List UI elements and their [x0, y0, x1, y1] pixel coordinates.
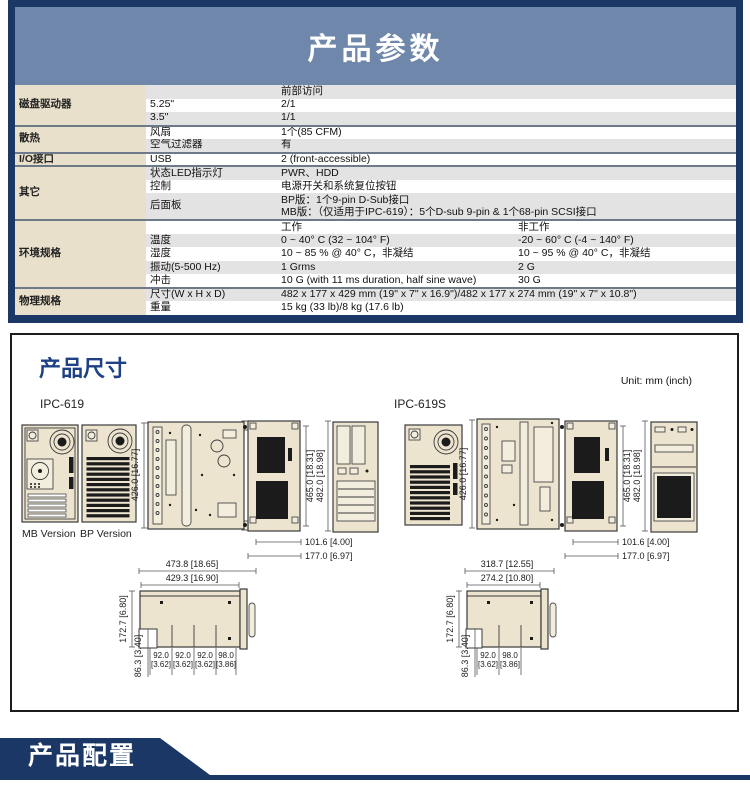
- svg-text:[3.62]: [3.62]: [478, 660, 498, 669]
- mb-version-label: MB Version: [22, 528, 76, 540]
- spec-subcategory: 振动(5-500 Hz): [146, 261, 277, 275]
- spec-subcategory: USB: [146, 153, 277, 167]
- svg-text:98.0: 98.0: [502, 651, 518, 660]
- spec-row: 环境规格工作非工作: [15, 220, 736, 234]
- spec-value: 10 G (with 11 ms duration, half sine wav…: [277, 274, 514, 288]
- dim-foot-height-619s: 86.3 [3.40]: [460, 635, 470, 678]
- spec-value: 电源开关和系统复位按钮: [277, 180, 736, 194]
- ipc619-side-view: [243, 421, 300, 531]
- spec-value: 有: [277, 139, 736, 153]
- svg-text:92.0: 92.0: [197, 651, 213, 660]
- params-header-banner: 产品参数: [15, 7, 736, 85]
- spec-row: 其它状态LED指示灯PWR、HDD: [15, 166, 736, 180]
- spec-value: 1个(85 CFM): [277, 126, 736, 140]
- spec-value-2: 非工作: [514, 220, 736, 234]
- svg-text:[3.62]: [3.62]: [151, 660, 171, 669]
- spec-subcategory: 风扇: [146, 126, 277, 140]
- params-title: 产品参数: [308, 24, 444, 68]
- spec-category: 其它: [15, 166, 146, 220]
- ipc619s-front-view: [651, 422, 697, 532]
- spec-row: 磁盘驱动器前部访问: [15, 85, 736, 99]
- spec-subcategory: 空气过滤器: [146, 139, 277, 153]
- dim-foot-height-619: 86.3 [3.40]: [133, 635, 143, 678]
- svg-text:92.0: 92.0: [480, 651, 496, 660]
- bp-version-label: BP Version: [80, 528, 132, 540]
- spec-value: 10 ~ 85 % @ 40° C，非凝结: [277, 247, 514, 261]
- spec-value: 工作: [277, 220, 514, 234]
- config-title: 产品配置: [28, 738, 136, 775]
- product-config-section: 产品配置: [0, 738, 750, 780]
- ipc619-rear-bp-view: [82, 425, 136, 522]
- dim-profile-outer-619: 473.8 [18.65]: [166, 559, 219, 569]
- dim-depth-619: 426.0 [16.77]: [130, 449, 140, 502]
- ipc619-front-view: [333, 422, 378, 532]
- unit-label: Unit: mm (inch): [621, 375, 692, 387]
- spec-value: 1/1: [277, 112, 736, 126]
- dim-height-inner-619: 465.0 [18.31]: [305, 450, 315, 503]
- spec-row: 物理规格尺寸(W x H x D)482 x 177 x 429 mm (19"…: [15, 288, 736, 302]
- svg-text:92.0: 92.0: [153, 651, 169, 660]
- ipc619-top-view: 426.0 [16.77]: [130, 421, 248, 530]
- spec-value-2: 2 G: [514, 261, 736, 275]
- spec-value: 2 (front-accessible): [277, 153, 736, 167]
- spec-category: 物理规格: [15, 288, 146, 315]
- dimensions-title: 产品尺寸: [39, 351, 127, 383]
- dim-front-height-619s: 172.7 [6.80]: [445, 595, 455, 643]
- dim-width-outer-619: 177.0 [6.97]: [305, 551, 353, 561]
- spec-subcategory: 状态LED指示灯: [146, 166, 277, 180]
- spec-subcategory: 湿度: [146, 247, 277, 261]
- spec-subcategory: [146, 220, 277, 234]
- dim-front-height-619: 172.7 [6.80]: [118, 595, 128, 643]
- spec-table: 磁盘驱动器前部访问5.25"2/13.5"1/1散热风扇1个(85 CFM)空气…: [15, 85, 736, 315]
- spec-subcategory: 冲击: [146, 274, 277, 288]
- spec-value: BP版：1个9-pin D-Sub接口MB版：（仅适用于IPC-619）：5个D…: [277, 193, 736, 220]
- ipc619-side-profile: 473.8 [18.65] 429.3 [16.90] 92.0 [3.62] …: [118, 559, 256, 677]
- spec-subcategory: 后面板: [146, 193, 277, 220]
- model-label-ipc619: IPC-619: [40, 397, 84, 411]
- spec-value: 前部访问: [277, 85, 736, 99]
- dim-width-outer-619s: 177.0 [6.97]: [622, 551, 670, 561]
- dim-profile-inner-619: 429.3 [16.90]: [166, 573, 219, 583]
- spec-category: 环境规格: [15, 220, 146, 288]
- product-params-section: 产品参数 磁盘驱动器前部访问5.25"2/13.5"1/1散热风扇1个(85 C…: [8, 0, 743, 323]
- spec-row: I/O接口USB2 (front-accessible): [15, 153, 736, 167]
- spec-subcategory: 控制: [146, 180, 277, 194]
- spec-subcategory: 5.25": [146, 99, 277, 113]
- ipc619s-rear-view: [405, 425, 462, 525]
- spec-subcategory: [146, 85, 277, 99]
- svg-text:[3.62]: [3.62]: [195, 660, 215, 669]
- model-label-ipc619s: IPC-619S: [394, 397, 446, 411]
- spec-subcategory: 3.5": [146, 112, 277, 126]
- product-dimensions-section: 产品尺寸 Unit: mm (inch) IPC-619 IPC-619S: [10, 333, 739, 712]
- dim-profile-inner-619s: 274.2 [10.80]: [481, 573, 534, 583]
- ipc619s-side-view: [560, 421, 617, 531]
- svg-text:92.0: 92.0: [175, 651, 191, 660]
- spec-value-2: 10 ~ 95 % @ 40° C，非凝结: [514, 247, 736, 261]
- dim-height-outer-619: 482.0 [18.98]: [315, 450, 325, 503]
- spec-subcategory: 重量: [146, 301, 277, 315]
- svg-text:[3.86]: [3.86]: [500, 660, 520, 669]
- spec-category: 散热: [15, 126, 146, 153]
- spec-subcategory: 尺寸(W x H x D): [146, 288, 277, 302]
- spec-subcategory: 温度: [146, 234, 277, 248]
- dim-height-inner-619s: 465.0 [18.31]: [622, 450, 632, 503]
- spec-value-2: 30 G: [514, 274, 736, 288]
- spec-category: 磁盘驱动器: [15, 85, 146, 126]
- dim-profile-outer-619s: 318.7 [12.55]: [481, 559, 534, 569]
- ipc619s-side-profile: 318.7 [12.55] 274.2 [10.80] 92.0 [3.62] …: [445, 559, 556, 677]
- spec-value: 0 ~ 40° C (32 ~ 104° F): [277, 234, 514, 248]
- spec-value: 2/1: [277, 99, 736, 113]
- svg-text:[3.62]: [3.62]: [173, 660, 193, 669]
- spec-category: I/O接口: [15, 153, 146, 167]
- spec-value: 1 Grms: [277, 261, 514, 275]
- svg-text:[3.86]: [3.86]: [216, 660, 236, 669]
- dim-width-inner-619: 101.6 [4.00]: [305, 537, 353, 547]
- ipc619-drawing: MB Version BP Version 426.0 [16.77]: [20, 415, 380, 707]
- spec-value-2: -20 ~ 60° C (-4 ~ 140° F): [514, 234, 736, 248]
- dim-depth-619s: 426.0 [16.77]: [458, 448, 468, 501]
- dim-height-outer-619s: 482.0 [18.98]: [632, 450, 642, 503]
- ipc619s-drawing: 426.0 [16.77] 465.0 [18.31] 482.0 [18.98…: [402, 415, 737, 707]
- dim-width-inner-619s: 101.6 [4.00]: [622, 537, 670, 547]
- spec-row: 散热风扇1个(85 CFM): [15, 126, 736, 140]
- ipc619s-top-view: 426.0 [16.77]: [458, 419, 559, 529]
- spec-value: 15 kg (33 lb)/8 kg (17.6 lb): [277, 301, 736, 315]
- svg-text:98.0: 98.0: [218, 651, 234, 660]
- spec-value: 482 x 177 x 429 mm (19" x 7" x 16.9")/48…: [277, 288, 736, 302]
- spec-value: PWR、HDD: [277, 166, 736, 180]
- ipc619-rear-mb-view: [22, 425, 78, 522]
